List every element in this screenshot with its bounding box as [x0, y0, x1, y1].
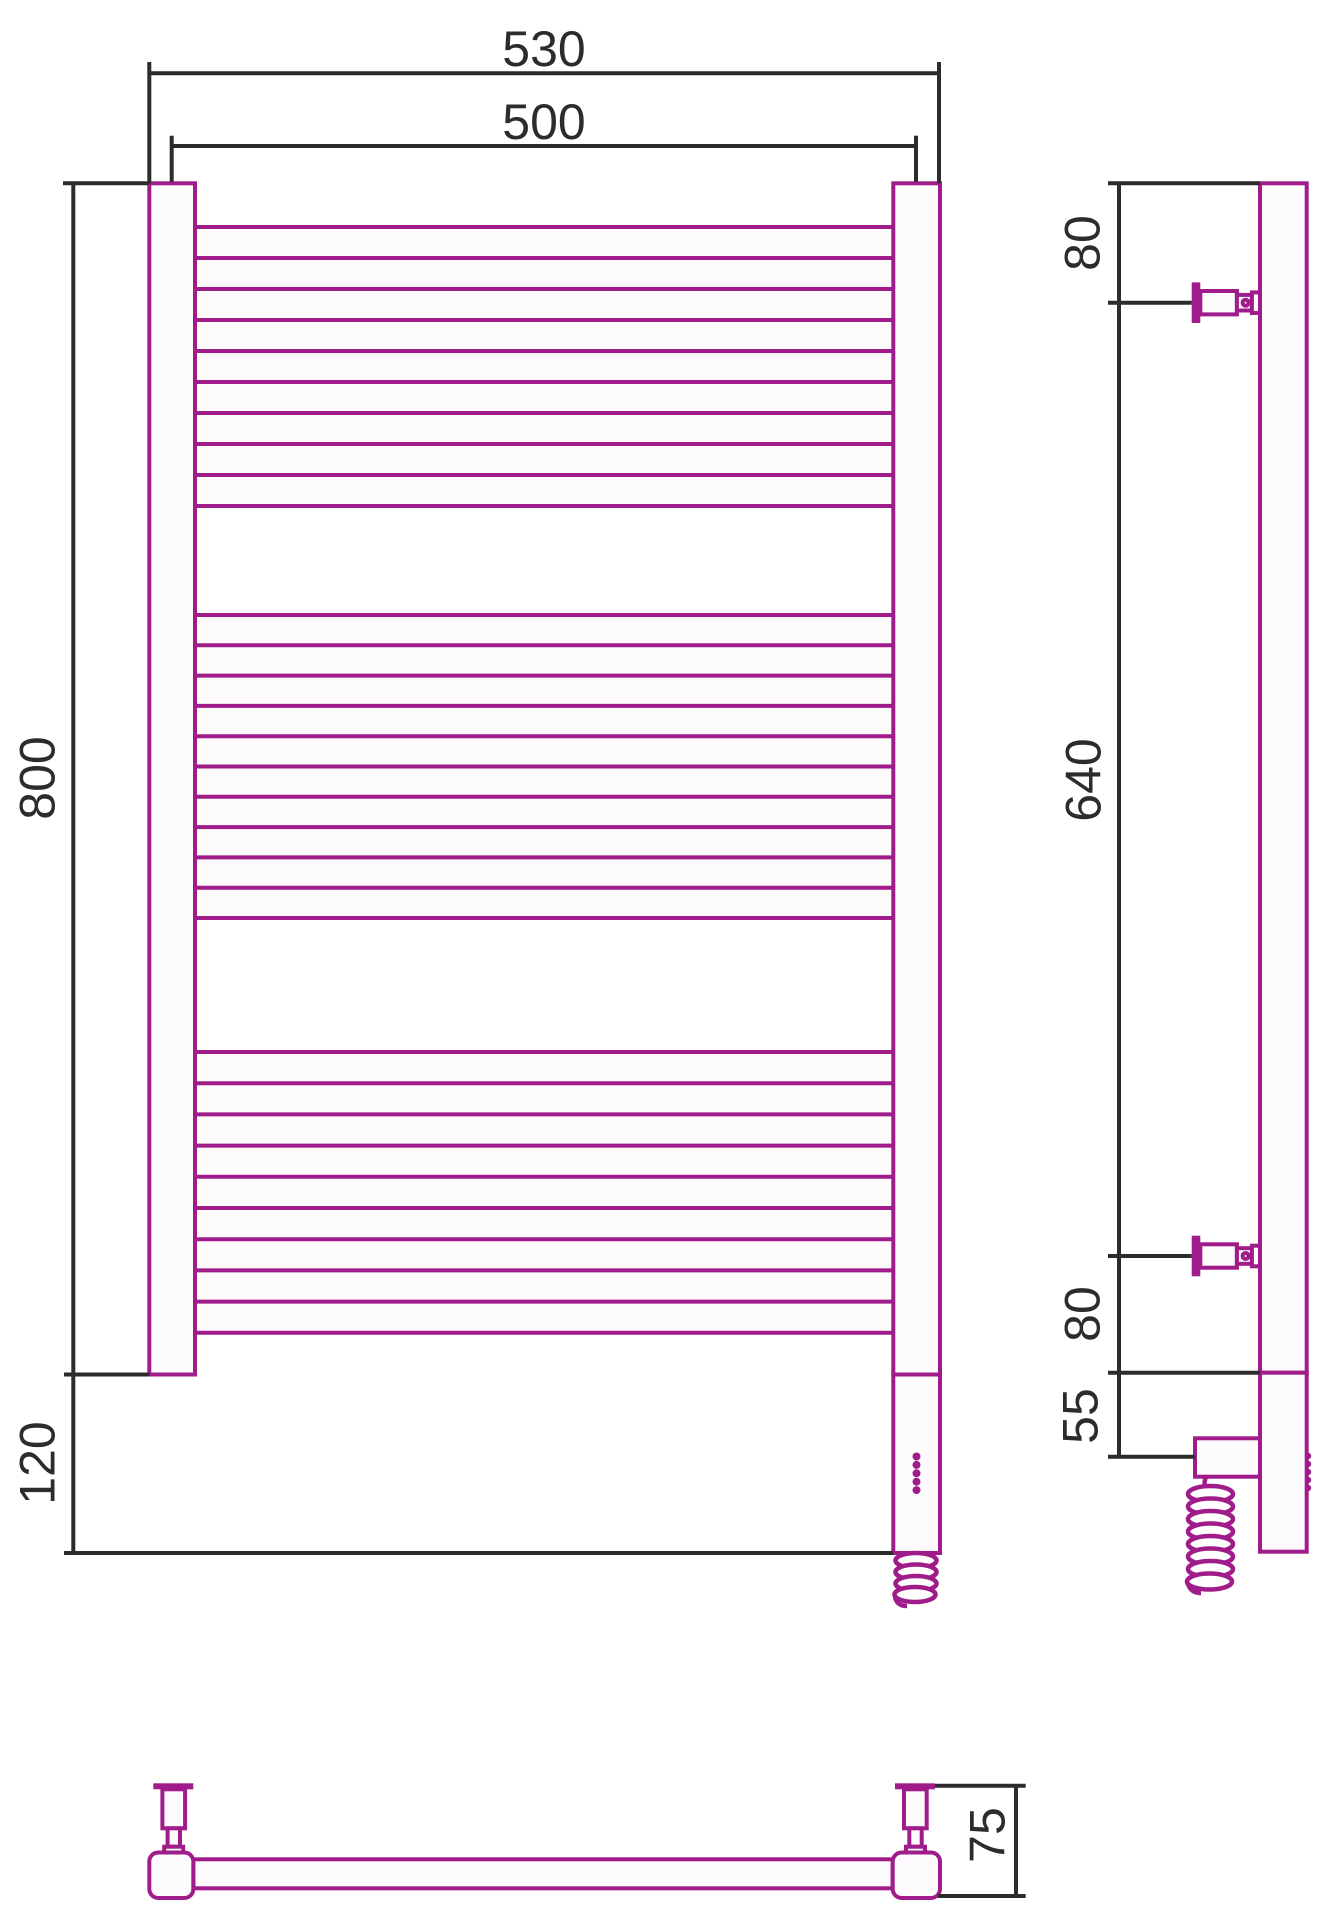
bottom-dimensions: 75 [935, 1786, 1026, 1896]
wall-bracket-top [1192, 282, 1260, 323]
bottom-view: 75 [149, 1783, 1025, 1898]
wall-bracket-bottom [1192, 1236, 1260, 1277]
cable-entry-box [1195, 1438, 1260, 1476]
dim-label-75: 75 [960, 1807, 1016, 1863]
dim-label-800: 800 [10, 736, 66, 819]
power-indicator-dots [913, 1453, 921, 1495]
dim-label-120: 120 [10, 1421, 66, 1504]
post-cap-right [893, 1853, 940, 1899]
post-cap-left [149, 1853, 193, 1899]
dim-label-80-bottom: 80 [1055, 1286, 1111, 1342]
left-post [149, 183, 195, 1374]
spiral-cable-front [895, 1553, 937, 1606]
side-post-profile [1260, 183, 1307, 1372]
dim-label-640: 640 [1056, 738, 1112, 821]
side-view [1187, 183, 1311, 1593]
dim-label-530: 530 [502, 21, 585, 77]
rung-group-fills [195, 227, 893, 1333]
dim-label-500: 500 [502, 94, 585, 150]
dim-label-55: 55 [1053, 1388, 1109, 1444]
plan-bracket-left [153, 1783, 193, 1853]
side-element-housing [1260, 1373, 1307, 1552]
spiral-cable-side [1187, 1477, 1233, 1593]
plan-bracket-right [895, 1783, 935, 1853]
towel-rail-technical-drawing: 530 500 800 120 [0, 0, 1329, 1920]
front-view [149, 183, 940, 1606]
dim-label-80-top: 80 [1055, 215, 1111, 271]
top-rung-tube [193, 1859, 892, 1888]
right-post [893, 183, 940, 1374]
